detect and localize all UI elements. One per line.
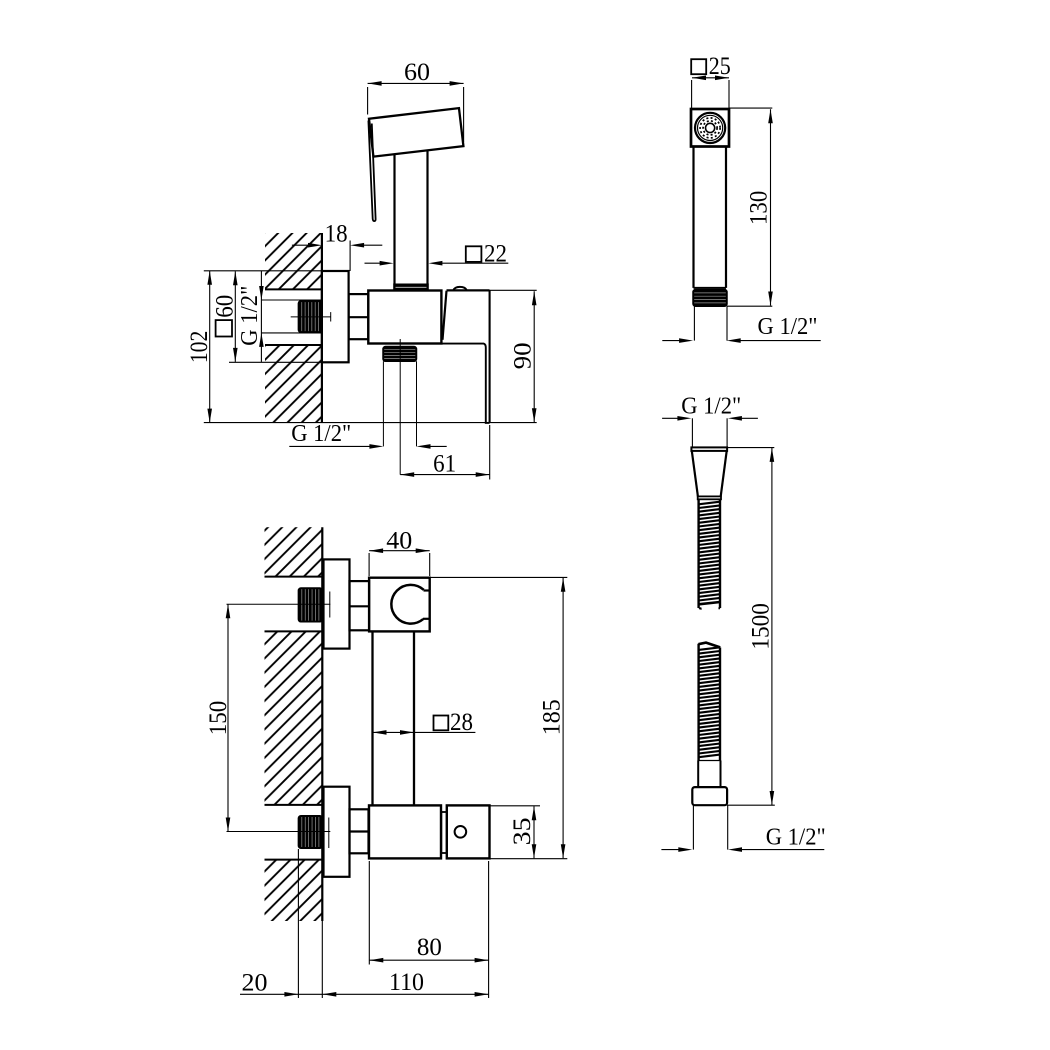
- svg-text:G 1/2": G 1/2": [758, 314, 818, 340]
- svg-text:61: 61: [433, 451, 456, 478]
- svg-text:G 1/2": G 1/2": [237, 286, 263, 346]
- svg-text:80: 80: [417, 934, 442, 961]
- svg-text:G 1/2": G 1/2": [681, 393, 741, 419]
- svg-text:28: 28: [450, 709, 473, 736]
- svg-text:1500: 1500: [748, 603, 775, 650]
- svg-text:60: 60: [212, 295, 239, 318]
- svg-text:G 1/2": G 1/2": [766, 825, 826, 851]
- svg-text:60: 60: [404, 59, 430, 86]
- svg-text:25: 25: [709, 53, 731, 80]
- svg-text:18: 18: [325, 221, 348, 248]
- svg-text:185: 185: [538, 699, 565, 735]
- svg-text:102: 102: [186, 331, 213, 364]
- svg-text:40: 40: [386, 527, 412, 554]
- svg-text:130: 130: [746, 191, 773, 225]
- svg-text:90: 90: [509, 342, 536, 369]
- svg-text:20: 20: [242, 969, 268, 996]
- svg-text:150: 150: [205, 701, 232, 736]
- svg-text:22: 22: [484, 241, 507, 268]
- svg-text:G 1/2": G 1/2": [291, 421, 351, 447]
- svg-text:110: 110: [389, 969, 424, 996]
- svg-text:35: 35: [509, 817, 536, 845]
